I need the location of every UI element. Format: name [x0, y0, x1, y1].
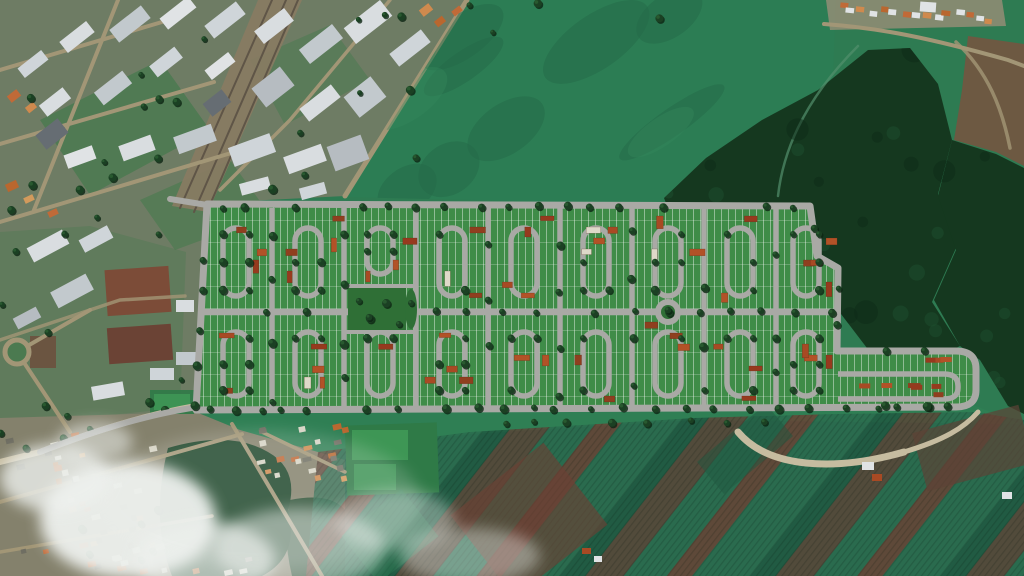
masterplan-house-roof: [933, 392, 943, 397]
building-roof: [176, 352, 196, 365]
cloud: [57, 422, 133, 462]
masterplan-house-roof: [502, 282, 512, 288]
town-house-roof: [903, 11, 912, 18]
masterplan-house-roof: [826, 355, 832, 369]
masterplan-house-roof: [582, 249, 592, 255]
town-house-roof: [956, 9, 965, 15]
masterplan-house-roof: [749, 366, 762, 371]
masterplan-house-roof: [320, 377, 325, 388]
masterplan-house-roof: [445, 271, 451, 286]
green-median: [405, 289, 417, 329]
masterplan-house-roof: [721, 293, 728, 302]
town-house-roof: [941, 10, 950, 16]
town-house-roof: [966, 12, 974, 18]
town-house-roof: [840, 2, 848, 8]
masterplan-house-roof: [366, 271, 371, 282]
masterplan-house-roof: [540, 216, 554, 221]
masterplan-house-roof: [470, 227, 486, 233]
masterplan-house-roof: [525, 227, 531, 237]
masterplan-house-roof: [881, 383, 892, 388]
building-roof: [582, 548, 591, 554]
masterplan-house-roof: [469, 293, 482, 298]
terrain-patch: [107, 324, 173, 364]
masterplan-house-roof: [287, 271, 292, 283]
masterplan-house-roof: [333, 216, 345, 221]
masterplan-house-roof: [594, 238, 605, 244]
masterplan-house-roof: [656, 216, 663, 229]
masterplan-house-roof: [690, 249, 706, 256]
masterplan-house-roof: [826, 238, 837, 245]
masterplan-house-roof: [604, 396, 615, 402]
masterplan-house-roof: [514, 355, 530, 361]
town-house-roof: [923, 12, 932, 19]
masterplan-house-roof: [742, 396, 756, 401]
town-house-roof: [976, 15, 984, 21]
masterplan-house-roof: [575, 355, 582, 365]
masterplan-house-roof: [403, 238, 417, 244]
masterplan-house-roof: [586, 227, 600, 233]
building-roof: [920, 1, 937, 12]
masterplan-house-roof: [714, 344, 724, 349]
masterplan-house-roof: [439, 333, 451, 338]
masterplan-house-roof: [459, 377, 473, 384]
masterplan-house-roof: [521, 293, 534, 298]
masterplan-house-roof: [802, 344, 808, 358]
town-house-roof: [869, 11, 877, 17]
town-house-roof: [856, 6, 865, 12]
masterplan-house-roof: [940, 357, 951, 362]
masterplan-house-roof: [911, 385, 922, 390]
masterplan-house-roof: [236, 227, 246, 233]
masterplan-house-roof: [425, 377, 436, 383]
masterplan-house-roof: [645, 322, 658, 328]
satellite-map-viewport: [0, 0, 1024, 576]
masterplan-house-roof: [447, 366, 458, 372]
masterplan-house-roof: [393, 260, 399, 270]
town-house-roof: [984, 19, 992, 25]
building-roof: [872, 474, 882, 481]
masterplan-house-roof: [826, 282, 832, 297]
masterplan-house-roof: [312, 366, 324, 373]
satellite-image: [0, 0, 1024, 576]
masterplan-house-roof: [859, 383, 870, 388]
town-house-roof: [845, 7, 854, 13]
masterplan-house-roof: [931, 384, 941, 389]
masterplan-house-roof: [257, 249, 267, 256]
town-house-roof: [881, 6, 889, 12]
terrain-patch: [104, 266, 171, 316]
cloud: [100, 430, 420, 570]
masterplan-house-roof: [304, 377, 311, 389]
town-house-roof: [888, 9, 896, 15]
masterplan-house-roof: [608, 227, 618, 233]
masterplan-house-roof: [925, 358, 937, 363]
masterplan-house-roof: [678, 344, 690, 351]
roundabout-sw: [5, 340, 29, 364]
masterplan-house-roof: [331, 238, 336, 252]
building-roof: [176, 300, 194, 312]
building-roof: [150, 368, 174, 380]
building-roof: [862, 462, 874, 470]
building-roof: [1002, 492, 1012, 499]
masterplan-house-roof: [542, 355, 549, 366]
masterplan-house-roof: [379, 344, 393, 349]
masterplan-house-roof: [744, 216, 757, 222]
masterplan-house-roof: [311, 344, 327, 349]
masterplan-house-roof: [219, 333, 234, 338]
town-house-roof: [912, 12, 921, 18]
building-roof: [594, 556, 602, 562]
masterplan-house-roof: [286, 249, 298, 256]
